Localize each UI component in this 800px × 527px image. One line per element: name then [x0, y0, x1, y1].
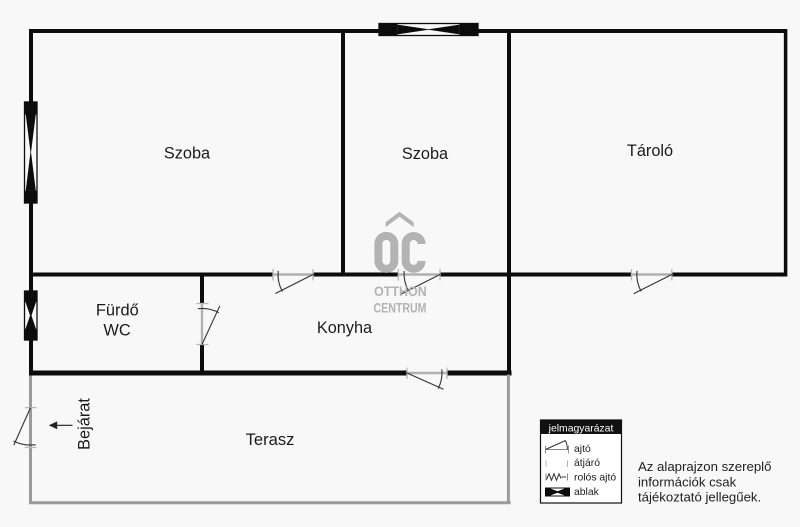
svg-text:Konyha: Konyha: [317, 319, 373, 337]
svg-text:Terasz: Terasz: [246, 430, 295, 449]
svg-text:OTTHON: OTTHON: [374, 284, 427, 299]
svg-text:információk csak: információk csak: [638, 474, 737, 489]
svg-text:Bejárat: Bejárat: [75, 398, 93, 450]
svg-text:átjáró: átjáró: [574, 458, 600, 469]
svg-text:Tároló: Tároló: [627, 142, 673, 160]
svg-text:CENTRUM: CENTRUM: [374, 301, 427, 316]
svg-text:tájékoztató jellegűek.: tájékoztató jellegűek.: [638, 490, 761, 505]
svg-text:rolós ajtó: rolós ajtó: [574, 473, 616, 484]
svg-text:jelmagyarázat: jelmagyarázat: [548, 423, 614, 434]
svg-text:WC: WC: [103, 322, 130, 340]
svg-text:Fürdő: Fürdő: [96, 302, 139, 320]
svg-text:ablak: ablak: [574, 487, 600, 498]
svg-text:Az alaprajzon szereplő: Az alaprajzon szereplő: [638, 459, 771, 474]
svg-text:Szoba: Szoba: [402, 145, 449, 163]
svg-text:Szoba: Szoba: [164, 145, 211, 163]
svg-text:ajtó: ajtó: [574, 444, 591, 455]
